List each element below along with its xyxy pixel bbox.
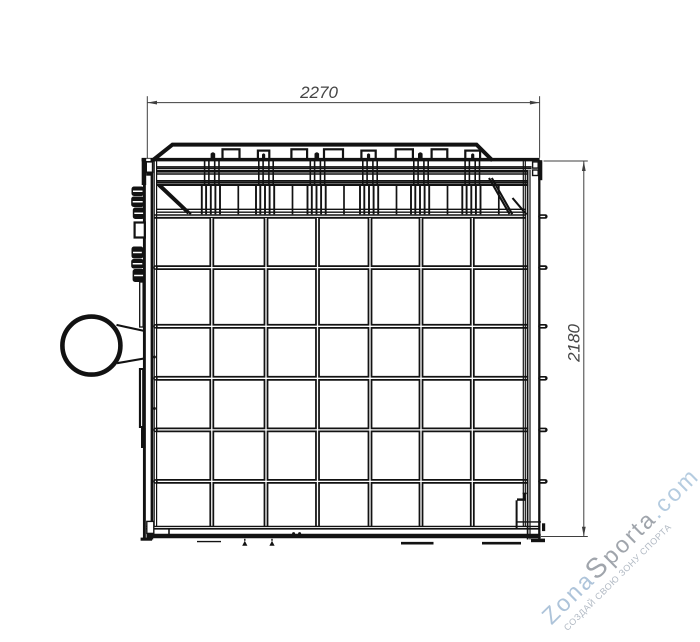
svg-text:2270: 2270 bbox=[299, 83, 338, 102]
svg-text:2180: 2180 bbox=[565, 324, 584, 363]
